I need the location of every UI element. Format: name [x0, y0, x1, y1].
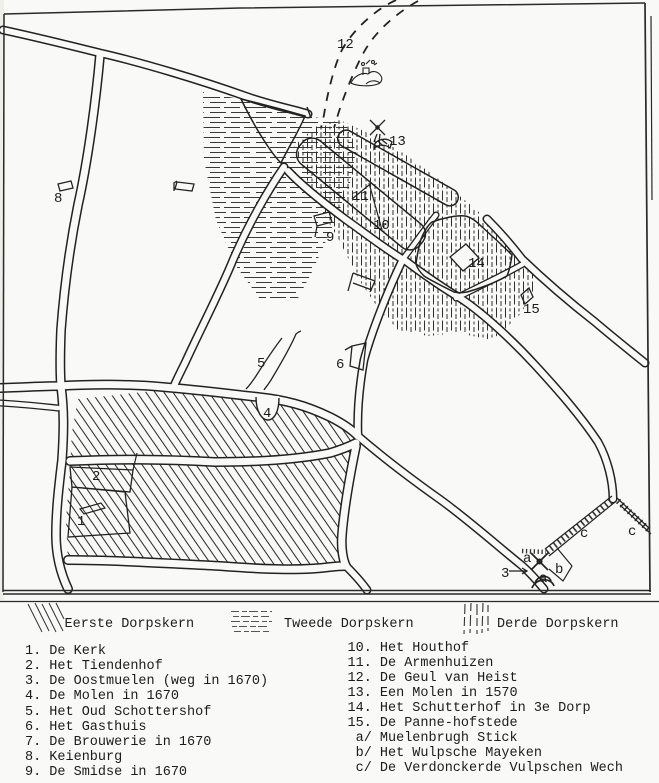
svg-text:11: 11 [352, 189, 369, 205]
svg-text:3: 3 [501, 566, 509, 582]
svg-text:12: 12 [337, 37, 354, 53]
svg-text:3. De Oostmuelen (weg in 1670): 3. De Oostmuelen (weg in 1670) [25, 674, 268, 689]
svg-text:b: b [555, 562, 563, 578]
svg-text:9: 9 [326, 230, 334, 246]
svg-text:5: 5 [257, 356, 265, 372]
svg-text:15: 15 [523, 302, 540, 318]
svg-text:2. Het Tiendenhof: 2. Het Tiendenhof [25, 659, 163, 674]
svg-text:1: 1 [77, 514, 85, 530]
svg-text:6. Het Gasthuis: 6. Het Gasthuis [25, 720, 147, 735]
svg-text:4: 4 [263, 406, 271, 422]
svg-text:12. De Geul van Heist: 12. De Geul van Heist [348, 671, 518, 686]
svg-text:a: a [539, 571, 547, 587]
svg-text:c/ De Verdonckerde Vulpschen W: c/ De Verdonckerde Vulpschen Wech [356, 761, 623, 776]
svg-text:13: 13 [389, 134, 406, 150]
svg-text:a: a [523, 551, 531, 567]
svg-text:14. Het Schutterhof in 3e Dorp: 14. Het Schutterhof in 3e Dorp [348, 701, 591, 716]
svg-text:8: 8 [54, 191, 62, 207]
svg-text:5. Het Oud Schottershof: 5. Het Oud Schottershof [25, 705, 211, 720]
svg-text:c: c [580, 526, 588, 542]
svg-text:8. Keienburg: 8. Keienburg [25, 750, 122, 765]
svg-text:10: 10 [373, 218, 390, 234]
svg-text:b/ Het Wulpsche Mayeken: b/ Het Wulpsche Mayeken [356, 746, 542, 761]
svg-text:a/ Muelenbrugh Stick: a/ Muelenbrugh Stick [356, 731, 518, 746]
svg-text:4. De Molen in 1670: 4. De Molen in 1670 [25, 689, 179, 704]
svg-text:Tweede Dorpskern: Tweede Dorpskern [284, 617, 414, 632]
svg-text:6: 6 [336, 357, 344, 373]
svg-text:11. De Armenhuizen: 11. De Armenhuizen [348, 656, 494, 671]
svg-text:13. Een Molen in 1570: 13. Een Molen in 1570 [348, 686, 518, 701]
svg-text:14: 14 [468, 256, 485, 272]
svg-text:15. De Panne-hofstede: 15. De Panne-hofstede [348, 716, 518, 731]
svg-text:9. De Smidse in 1670: 9. De Smidse in 1670 [25, 765, 187, 780]
svg-text:7. De Brouwerie in 1670: 7. De Brouwerie in 1670 [25, 735, 211, 750]
svg-text:Eerste Dorpskern: Eerste Dorpskern [65, 617, 195, 632]
svg-text:1. De Kerk: 1. De Kerk [25, 644, 106, 659]
svg-text:Derde Dorpskern: Derde Dorpskern [497, 617, 619, 632]
svg-text:c: c [628, 524, 636, 540]
svg-text:10. Het Houthof: 10. Het Houthof [348, 641, 470, 656]
svg-text:2: 2 [92, 469, 100, 485]
